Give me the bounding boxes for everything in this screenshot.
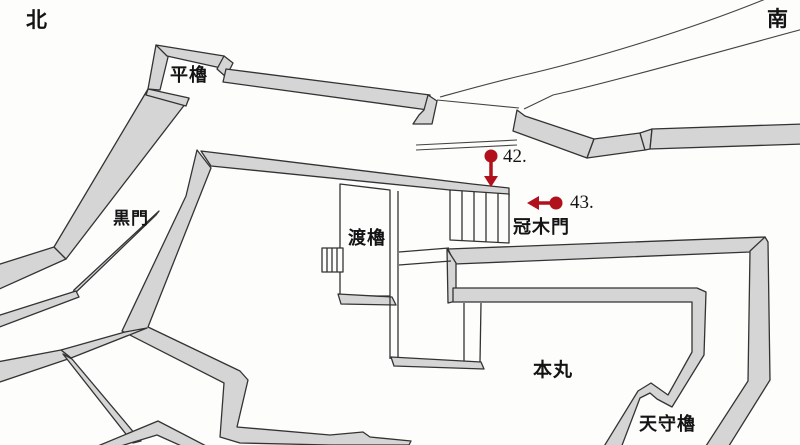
marker-42[interactable] <box>484 150 498 188</box>
hirayagura-label: 平櫓 <box>170 61 208 87</box>
stairs-outline <box>450 190 509 243</box>
marker-42-dot[interactable] <box>485 150 498 163</box>
compass-south-label: 南 <box>767 3 789 33</box>
connector-lines <box>399 248 451 265</box>
main-stairs <box>450 190 509 243</box>
wall-segment <box>223 69 430 110</box>
road-edge-line <box>437 100 519 108</box>
honmaru-label: 本丸 <box>533 355 573 382</box>
marker-43-number: 43. <box>570 192 594 214</box>
central-structures <box>322 184 509 369</box>
side-steps <box>322 248 343 272</box>
marker-43-arrowhead <box>527 196 539 210</box>
building-side-wall-lines <box>390 191 398 360</box>
courtyard-walls <box>391 248 484 369</box>
castle-map: 北 南 平櫓 黒門 渡櫓 冠木門 本丸 天守櫓 42. 43. <box>0 0 800 445</box>
corner-branch-wall <box>61 328 147 358</box>
tenshuyagura-label: 天守櫓 <box>639 410 696 436</box>
honmaru-north-wall <box>447 237 770 445</box>
wall-segment <box>650 124 800 149</box>
ramp-edge-line <box>416 140 517 145</box>
southeast-wall <box>513 110 800 158</box>
honmaru-east-outer-wall <box>704 237 770 445</box>
marker-43-dot[interactable] <box>550 197 563 210</box>
compass-north-label: 北 <box>26 4 48 34</box>
kuromon-label: 黒門 <box>113 204 149 229</box>
corner-branch-wall <box>0 350 71 383</box>
wedge-wall <box>0 291 79 328</box>
road-edge-line <box>524 29 800 109</box>
marker-43[interactable] <box>527 196 563 210</box>
lower-platform-band <box>391 357 484 369</box>
wall-segment <box>0 247 66 290</box>
watariyagura-building <box>338 184 398 360</box>
watariyagura-label: 渡櫓 <box>348 224 386 250</box>
south-bastion-wall <box>93 421 210 445</box>
platform-edge-lines <box>464 303 481 362</box>
wall-segment <box>587 133 645 158</box>
narrow-wall <box>63 354 141 443</box>
marker-42-number: 42. <box>503 146 527 168</box>
ramp-edge-line <box>416 145 517 150</box>
kabukimon-label: 冠木門 <box>513 213 570 239</box>
